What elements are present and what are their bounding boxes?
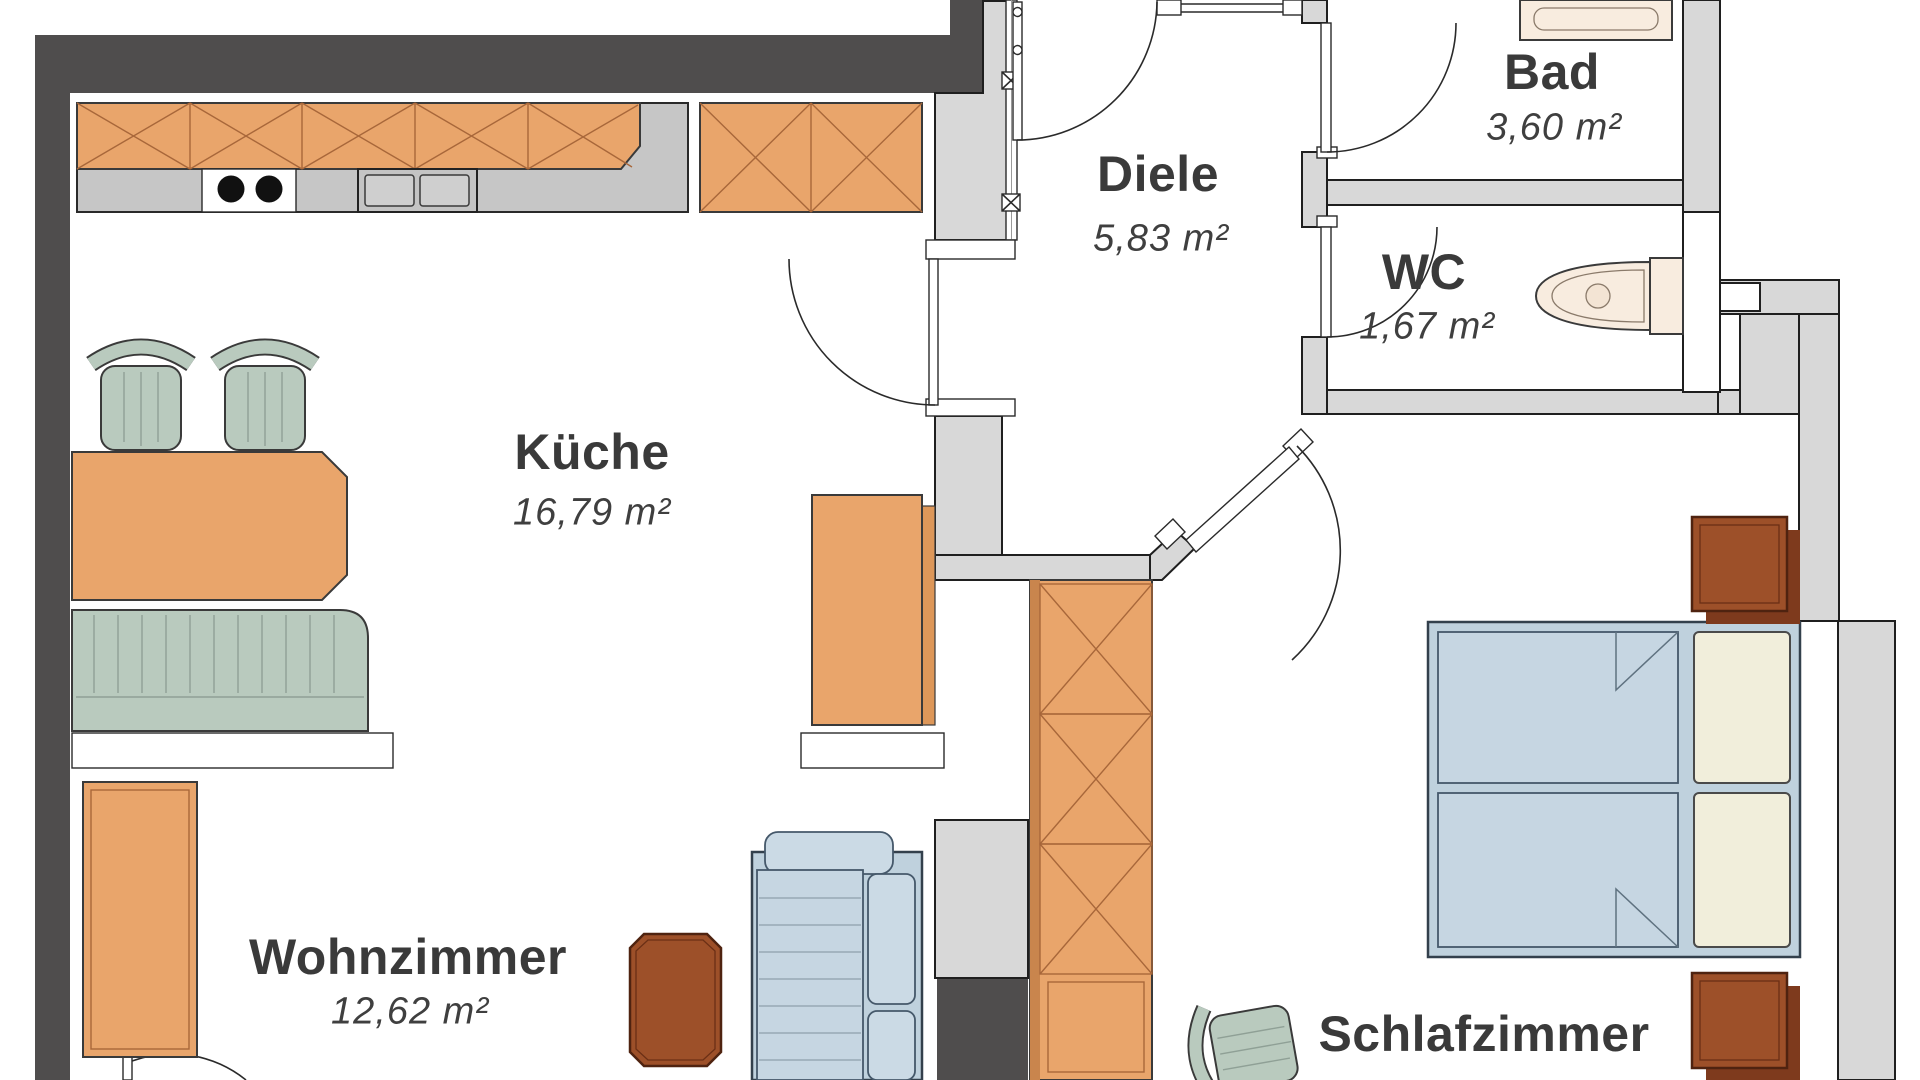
entrance-door-icon: [1013, 2, 1157, 140]
nightstand: [1692, 517, 1800, 624]
room-label-schlafzimmer: Schlafzimmer: [1318, 1005, 1649, 1063]
room-label-diele: Diele: [1097, 145, 1219, 203]
room-label-bad: Bad: [1504, 43, 1600, 101]
sofa: [752, 832, 922, 1080]
room-label-kueche: Küche: [514, 423, 669, 481]
tall-cabinet: [812, 495, 935, 725]
kitchen-door-icon: [789, 259, 938, 405]
sideboard: [83, 782, 197, 1057]
dining-chair: [91, 347, 191, 450]
sink-icon: [358, 169, 477, 212]
desk-chair: [1188, 994, 1301, 1080]
room-area-kueche: 16,79 m²: [513, 492, 671, 535]
toilet-icon: [1536, 258, 1683, 334]
room-label-wc: WC: [1382, 243, 1466, 301]
dining-table: [72, 452, 347, 600]
wall-cabinet: [700, 103, 922, 212]
console-shelf: [72, 733, 944, 768]
floorplan-canvas: Küche 16,79 m² Diele 5,83 m² Bad 3,60 m²…: [0, 0, 1920, 1080]
room-label-wohnzimmer: Wohnzimmer: [249, 928, 567, 986]
kitchen-counter: [77, 103, 688, 212]
room-area-diele: 5,83 m²: [1093, 218, 1229, 261]
room-area-schlafzimmer: 15,77 m²: [1408, 1075, 1566, 1080]
cooktop-icon: [202, 169, 296, 212]
pillow: [1694, 793, 1790, 947]
room-area-bad: 3,60 m²: [1486, 107, 1622, 150]
bath-door-icon: [1321, 23, 1456, 152]
wardrobe: [1030, 580, 1152, 1080]
dining-chair: [215, 347, 315, 450]
kitchen-bench: [72, 610, 368, 731]
room-area-wc: 1,67 m²: [1359, 306, 1495, 349]
room-area-wohnzimmer: 12,62 m²: [331, 991, 489, 1034]
coffee-table: [630, 934, 721, 1066]
vanity-basin-icon: [1520, 0, 1672, 40]
pillow: [1694, 632, 1790, 783]
nightstand: [1692, 973, 1800, 1080]
double-bed: [1428, 622, 1800, 957]
floorplan-drawing: [0, 0, 1920, 1080]
